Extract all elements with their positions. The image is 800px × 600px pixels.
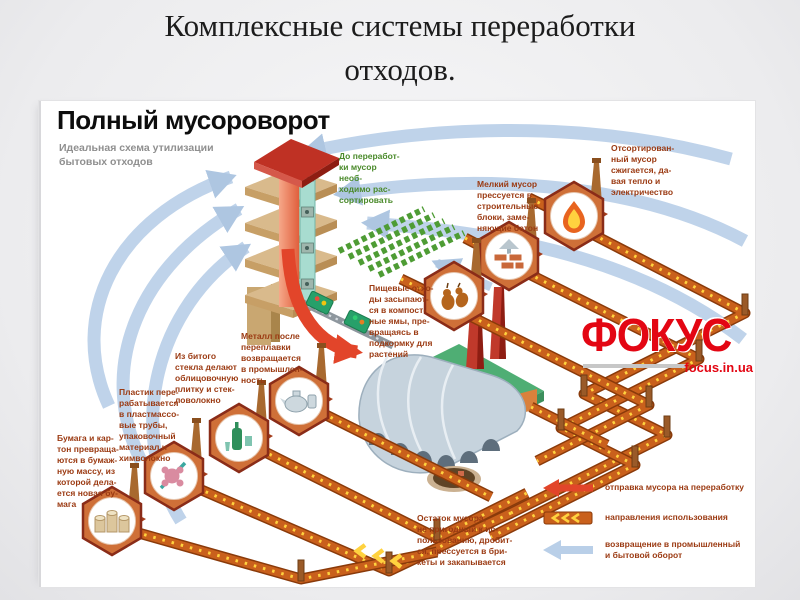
legend: отправка мусора на переработку направлен…	[541, 477, 759, 572]
infographic-title: Полный мусороворот	[57, 105, 330, 136]
legend-conveyor-icon	[541, 508, 595, 528]
focus-logo-site: focus.in.ua	[684, 360, 753, 375]
infographic-panel: .co{fill:none;stroke:#8a3a0a;stroke-widt…	[38, 100, 756, 588]
focus-logo: ФОКУС focus.in.ua	[581, 313, 757, 375]
label-paper: Бумага и кар- тон превраща- ются в бумаж…	[57, 433, 127, 510]
focus-logo-text: ФОКУС	[581, 313, 757, 359]
focus-logo-underline	[583, 364, 687, 368]
legend-row-return: возвращение в промышленный и бытовой обо…	[541, 537, 759, 563]
label-sorting: До переработ- ки мусор необ- ходимо рас-…	[339, 151, 401, 206]
legend-row-send: отправка мусора на переработку	[541, 477, 759, 499]
label-metal: Металл после переплавки возвращается в п…	[241, 331, 315, 386]
label-building-blocks: Мелкий мусор прессуется в строительные б…	[477, 179, 541, 234]
legend-return-arrow-icon	[541, 537, 595, 563]
presentation-slide: { "slide": { "title": "Комплексные систе…	[0, 0, 800, 600]
legend-send-text: отправка мусора на переработку	[605, 482, 744, 493]
label-plastic: Пластик пере- рабатывается в пластмассо-…	[119, 387, 187, 464]
legend-send-arrow-icon	[541, 477, 595, 499]
incinerator-plant-icon	[544, 158, 608, 250]
label-incineration: Отсортирован- ный мусор сжигается, да- в…	[611, 143, 695, 198]
legend-return-text: возвращение в промышленный и бытовой обо…	[605, 539, 740, 562]
label-residue: Остаток мусора, не пригодный к ис- польз…	[417, 513, 521, 568]
legend-row-use: направления использования	[541, 508, 759, 528]
legend-use-text: направления использования	[605, 512, 728, 523]
label-food-compost: Пищевые отхо- ды засыпают- ся в компост-…	[369, 283, 435, 360]
slide-title: Комплексные системы переработки отходов.	[0, 4, 800, 92]
infographic-subtitle: Идеальная схема утилизации бытовых отход…	[59, 141, 214, 169]
